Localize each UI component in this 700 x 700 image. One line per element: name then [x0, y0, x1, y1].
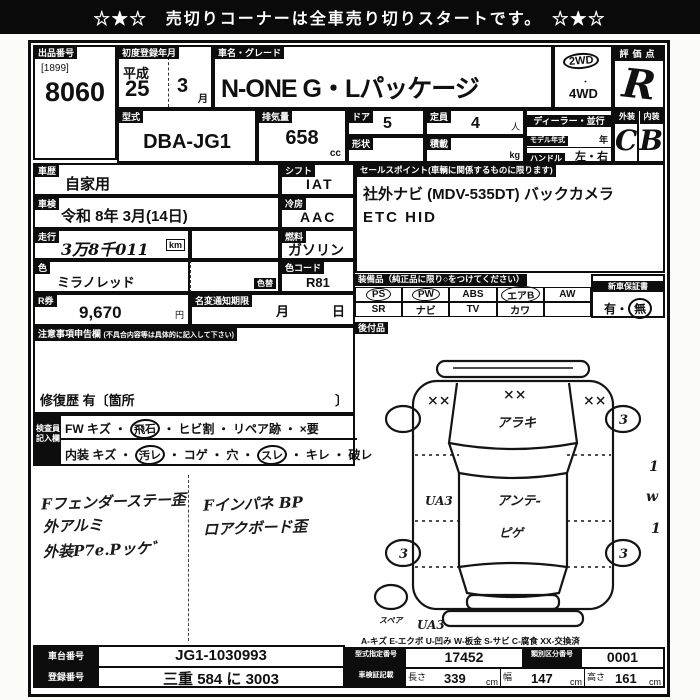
model-year-unit: 年	[599, 133, 608, 146]
rear-bumper	[443, 611, 583, 626]
auction-sheet-page: ☆★☆ 売切りコーナーは全車売り切りスタートです。 ☆★☆ 出品番号 [1899…	[0, 0, 700, 700]
wheel-grade: 3	[619, 413, 628, 428]
name-change-label: 名変通知期限	[192, 295, 252, 307]
wheel-grade: 3	[399, 547, 408, 562]
lot-number: 8060	[35, 77, 115, 108]
equipment-pw: PW	[402, 287, 449, 302]
roof-note: アンテ-	[497, 494, 541, 509]
equipment-ps: PS	[355, 287, 402, 302]
car-name: N-ONE G・Lパッケージ	[221, 69, 479, 105]
hatch-note: ピゲ	[499, 526, 525, 540]
sales-point-box: セールスポイント(車輌に関係するものに限ります) 社外ナビ (MDV-535DT…	[355, 163, 665, 273]
handwritten-note: Fフェンダーステー歪	[41, 488, 187, 514]
sales-point-label: セールスポイント(車輌に関係するものに限ります)	[357, 165, 556, 177]
chassis-label: 車台番号	[35, 647, 97, 666]
recycle-ticket-value: 9,670	[79, 303, 122, 323]
warranty-box: 新車保証書 有・無	[591, 274, 665, 318]
rear-window	[459, 563, 567, 597]
xx-mark: ××	[427, 393, 450, 409]
reg-month-unit: 月	[198, 90, 208, 105]
shift-value: IAT	[306, 176, 334, 192]
warranty-no: 無	[627, 297, 652, 320]
width-value: 147	[531, 671, 553, 686]
fuel-box: 燃料 ガソリン	[280, 229, 355, 260]
xx-mark: ××	[583, 393, 606, 409]
displacement-unit: cc	[330, 148, 341, 159]
first-registration-box: 初度登録年月 平成 25 3 月	[117, 45, 213, 109]
handwritten-note: 外装P7e.Pッケ゛	[43, 537, 166, 562]
rear-note: UA3	[417, 618, 445, 632]
length-cell: 長さ 339 cm	[405, 669, 501, 688]
color-box: 色 ミラノレッド	[33, 260, 190, 293]
model-code-box: 型式 DBA-JG1	[117, 109, 257, 163]
history-label: 車歴	[35, 165, 59, 177]
capacity-box: 定員 4 人	[425, 109, 525, 136]
mileage-value: 3万8千011	[61, 236, 149, 260]
color-code-box: 色コード R81	[280, 260, 355, 293]
ac-value: AAC	[300, 209, 336, 225]
class-number-label: 類別区分番号	[523, 649, 581, 667]
shaken-value: 令和 8年 3月(14日)	[61, 205, 188, 226]
car-name-label: 車名・グレード	[215, 47, 284, 59]
chassis-table: 車台番号 JG1-1030993 登録番号 三重 584 に 3003	[33, 645, 345, 688]
equipment-tv: TV	[449, 302, 496, 317]
interior-grade: B	[639, 124, 663, 163]
dealer-box: ディーラー・並行 モデル年式 年 ハンドル 左・右	[525, 109, 613, 163]
sales-point-line2: ETC HID	[363, 209, 437, 226]
reg-month-cell: 3 月	[168, 57, 211, 107]
recycle-ticket-unit: 円	[175, 308, 184, 321]
notes-divider	[188, 475, 189, 641]
lot-number-box: 出品番号 [1899] 8060	[33, 45, 117, 160]
color-label: 色	[35, 262, 50, 274]
type-number: 17452	[405, 649, 523, 667]
first-registration-label: 初度登録年月	[119, 47, 179, 59]
handle-value: 左・右	[575, 148, 608, 164]
inspector-label: 検査員記入欄	[35, 416, 61, 464]
equipment-navi: ナビ	[402, 302, 449, 317]
shaken-label: 車検	[35, 198, 59, 210]
length-value: 339	[444, 671, 466, 686]
equipment-abs: ABS	[449, 287, 496, 302]
margin-note: 1	[651, 521, 661, 537]
load-box: 積載 kg	[425, 136, 525, 163]
front-left-tire	[386, 406, 420, 432]
caution-header: 注意事項申告欄 (不具合内容等は具体的に記入して下さい)	[35, 328, 237, 341]
equipment-grid: PS PW ABS エアB AW SR ナビ TV カワ	[355, 287, 591, 317]
displacement: 658	[259, 127, 345, 150]
margin-note: w	[646, 489, 659, 505]
sales-point-line1: 社外ナビ (MDV-535DT) バックカメラ	[363, 183, 614, 204]
equipment-leather: カワ	[497, 302, 544, 317]
inspector-fw-row: FW キズ ・ 飛石 ・ ヒビ割 ・ リペア跡 ・ ×要	[61, 416, 357, 440]
warranty-label: 新車保証書	[593, 281, 663, 292]
model-code-label: 型式	[119, 111, 143, 123]
height-cell: 高さ 161 cm	[585, 669, 663, 688]
color-change-label: 色替	[254, 278, 276, 289]
wheel-grade: 3	[619, 547, 628, 562]
warranty-yes: 有	[604, 302, 616, 316]
front-bumper	[437, 361, 589, 377]
chassis-number: JG1-1030993	[97, 647, 343, 666]
caution-box: 注意事項申告欄 (不具合内容等は具体的に記入して下さい) 修復歴 有〔箇所 〕	[33, 326, 355, 414]
mileage-extra-box	[190, 229, 280, 260]
car-damage-diagram: ×× ×× ×× アラキ アンテ- ピゲ UA3 UA3 3 3 3 スペア 1…	[361, 355, 665, 633]
displacement-label: 排気量	[259, 111, 292, 123]
exterior-grade: C	[615, 124, 639, 163]
class-number: 0001	[581, 649, 663, 667]
doors-label: ドア	[349, 111, 373, 123]
shift-box: シフト IAT	[280, 163, 355, 196]
color-code-label: 色コード	[282, 262, 324, 274]
plate-label: 登録番号	[35, 668, 97, 688]
score-value: R	[613, 59, 666, 111]
score-box: 評価点 R	[613, 45, 665, 109]
handwritten-note: Fインパネ BP	[203, 491, 304, 515]
side-note: UA3	[425, 494, 453, 508]
model-code: DBA-JG1	[119, 131, 255, 154]
damage-legend: A-キズ E-エクボ U-凹み W-板金 S-サビ C-腐食 XX-交換済	[361, 635, 580, 647]
xx-mark: ××	[503, 387, 526, 403]
drivetrain-box: 2WD ・ 4WD	[553, 45, 613, 109]
load-label: 積載	[427, 138, 451, 150]
ac-label: 冷房	[282, 198, 306, 210]
hood-note: アラキ	[497, 416, 537, 431]
handwritten-note: ロアクボード歪	[203, 515, 308, 540]
reg-month: 3	[177, 75, 188, 98]
repair-history-close: 〕	[335, 390, 348, 409]
handwritten-note: 外アルミ	[43, 514, 104, 537]
day-label: 日	[332, 301, 345, 320]
equipment-header: 装備品（純正品に限り○をつけてください）	[355, 274, 527, 286]
inspector-box: 検査員記入欄 FW キズ ・ 飛石 ・ ヒビ割 ・ リペア跡 ・ ×要 内装 キ…	[33, 414, 355, 466]
top-banner: ☆★☆ 売切りコーナーは全車売り切りスタートです。 ☆★☆	[0, 0, 700, 34]
shaken-box: 車検 令和 8年 3月(14日)	[33, 196, 280, 229]
history-box: 車歴 自家用	[33, 163, 280, 196]
capacity-unit: 人	[511, 120, 520, 133]
auction-sheet: 出品番号 [1899] 8060 初度登録年月 平成 25 3 月 車名・グレー…	[28, 40, 670, 697]
aftermarket-label: 後付品	[355, 322, 388, 334]
shift-label: シフト	[282, 165, 315, 177]
dealer-label: ディーラー・並行	[527, 115, 611, 127]
reg-year: 25	[125, 76, 149, 102]
exterior-label: 外装	[615, 111, 639, 124]
capacity-label: 定員	[427, 111, 451, 123]
month-label: 月	[276, 301, 289, 320]
capacity: 4	[471, 115, 480, 133]
equipment-sr: SR	[355, 302, 402, 317]
margin-note: 1	[649, 459, 659, 475]
spare-tire	[375, 585, 407, 609]
history-value: 自家用	[65, 173, 110, 194]
type-number-label: 型式指定番号	[347, 649, 405, 667]
repair-history-line: 修復歴 有〔箇所	[40, 390, 135, 409]
ac-box: 冷房 AAC	[280, 196, 355, 229]
inspector-interior-row: 内装 キズ ・ 汚レ ・ コゲ ・ 穴 ・ スレ ・ キレ ・ 破レ	[61, 442, 357, 466]
load-unit: kg	[509, 150, 520, 160]
interior-label: 内装	[639, 111, 663, 124]
recycle-ticket-box: R券 9,670 円	[33, 293, 190, 326]
car-name-box: 車名・グレード N-ONE G・Lパッケージ	[213, 45, 553, 109]
equipment-empty	[544, 302, 591, 317]
lot-number-label: 出品番号	[35, 47, 77, 59]
plate-number: 三重 584 に 3003	[97, 668, 343, 688]
drivetrain-2wd: 2WD	[562, 52, 599, 71]
equipment-aw: AW	[544, 287, 591, 302]
type-dims-table: 型式指定番号 17452 類別区分番号 0001 車検証記載 長さ 339 cm…	[345, 647, 665, 688]
mileage-unit: km	[166, 239, 185, 251]
color-value: ミラノレッド	[57, 272, 135, 291]
mileage-box: 走行 3万8千011 km	[33, 229, 190, 260]
recycle-ticket-label: R券	[35, 295, 57, 307]
drivetrain-4wd: 4WD	[569, 86, 598, 101]
color-code: R81	[306, 275, 330, 290]
color-change-box: 色替	[190, 260, 280, 293]
body-shape-label: 形状	[349, 138, 373, 150]
doors: 5	[383, 115, 392, 133]
fuel-label: 燃料	[282, 231, 306, 243]
spare-label: スペア	[379, 615, 404, 625]
name-change-box: 名変通知期限 月 日	[190, 293, 355, 326]
height-value: 161	[615, 671, 637, 686]
equipment-airbag: エアB	[497, 287, 544, 302]
dims-label: 車検証記載	[347, 669, 405, 688]
doors-box: ドア 5	[347, 109, 425, 136]
width-cell: 幅 147 cm	[501, 669, 585, 688]
body-shape-box: 形状	[347, 136, 425, 163]
lot-bracket: [1899]	[41, 63, 69, 74]
mileage-label: 走行	[35, 231, 59, 243]
model-year-label: モデル年式	[527, 136, 568, 146]
displacement-box: 排気量 658 cc	[257, 109, 347, 163]
grade-box: 外装 内装 C B	[613, 109, 665, 163]
